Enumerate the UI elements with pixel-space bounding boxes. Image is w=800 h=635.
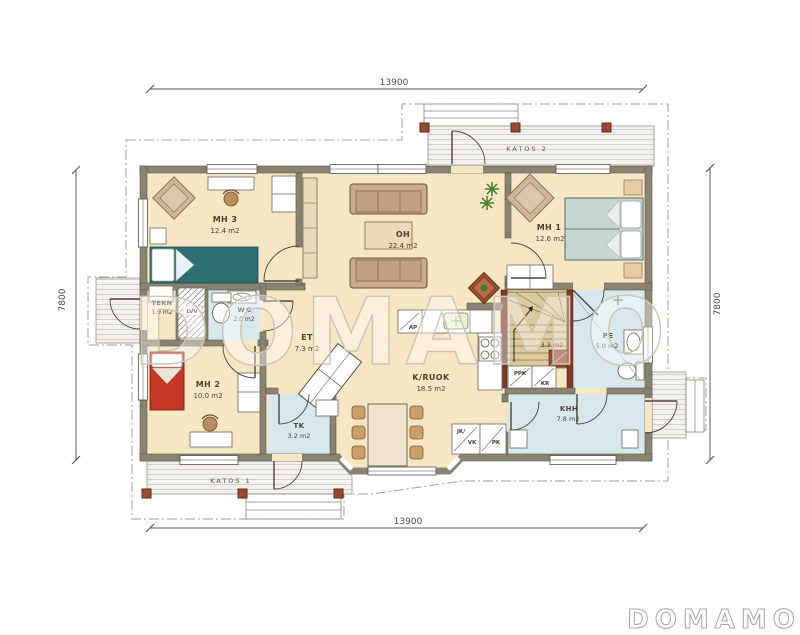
dim-top-value: 13900	[380, 78, 409, 88]
plant-icon	[480, 196, 494, 210]
floor-plan-image: 13900 13900 7800 7800 KATOS 2	[0, 0, 800, 635]
window	[180, 456, 238, 465]
khh-area: 7.8 m2	[557, 415, 580, 423]
plant-icon	[485, 182, 499, 196]
dim-left-value: 7800	[58, 288, 68, 311]
dining-table	[368, 404, 407, 466]
chair	[410, 446, 423, 459]
window	[139, 199, 148, 247]
dimension-top: 13900	[146, 78, 647, 93]
dining-set	[352, 404, 423, 466]
chair	[352, 406, 365, 419]
khh-name: KHH	[560, 405, 578, 413]
cabinet	[510, 430, 527, 448]
oh-area: 22.4 m2	[388, 242, 417, 250]
fridge-cabinets: JK/ VK PK	[452, 424, 506, 454]
wardrobe	[272, 176, 296, 212]
window	[207, 165, 257, 174]
chair	[410, 406, 423, 419]
vk-label: VK	[468, 440, 477, 446]
floor-plan-svg: 13900 13900 7800 7800 KATOS 2	[0, 0, 800, 635]
mh3-name: MH 3	[213, 215, 238, 224]
jk-label: JK/	[456, 429, 466, 435]
chair	[410, 426, 423, 439]
shoe-cabinet	[316, 400, 338, 416]
mh1-name: MH 1	[537, 223, 562, 232]
watermark-text: DOMAMO	[133, 278, 673, 386]
katos1-steps	[246, 494, 341, 519]
pk-label: PK	[492, 440, 501, 446]
chair	[352, 446, 365, 459]
mh3-area: 12.4 m2	[210, 227, 239, 235]
mh2-area: 10.0 m2	[193, 392, 222, 400]
dimension-left: 7800	[58, 166, 80, 464]
nightstand	[150, 228, 166, 244]
dimension-right: 7800	[706, 164, 723, 464]
sofa	[350, 184, 427, 214]
tk-name: TK	[294, 422, 305, 430]
nightstand	[624, 180, 642, 195]
window	[378, 165, 426, 174]
desk	[190, 432, 232, 447]
cabinet	[622, 430, 638, 448]
bookshelf	[303, 178, 317, 278]
dim-right-value: 7800	[713, 292, 723, 315]
window	[556, 165, 610, 174]
double-bed	[565, 198, 643, 260]
window	[330, 165, 378, 174]
window	[550, 456, 616, 465]
mh1-area: 12.6 m2	[535, 235, 564, 243]
chair	[352, 426, 365, 439]
katos1-label: KATOS 1	[210, 477, 252, 485]
katos2-steps	[424, 104, 518, 126]
porch-katos2: KATOS 2	[420, 104, 654, 166]
katos2-label: KATOS 2	[506, 145, 548, 153]
brand-logo: DOMAMO	[627, 605, 800, 635]
nightstand	[624, 263, 642, 278]
tk-area: 3.2 m2	[288, 432, 311, 440]
kruok-area: 18.5 m2	[416, 385, 445, 393]
oh-name: OH	[396, 230, 410, 239]
porch-katos1: KATOS 1	[142, 461, 352, 519]
desk	[208, 177, 254, 190]
dim-bottom-value: 13900	[394, 517, 423, 527]
